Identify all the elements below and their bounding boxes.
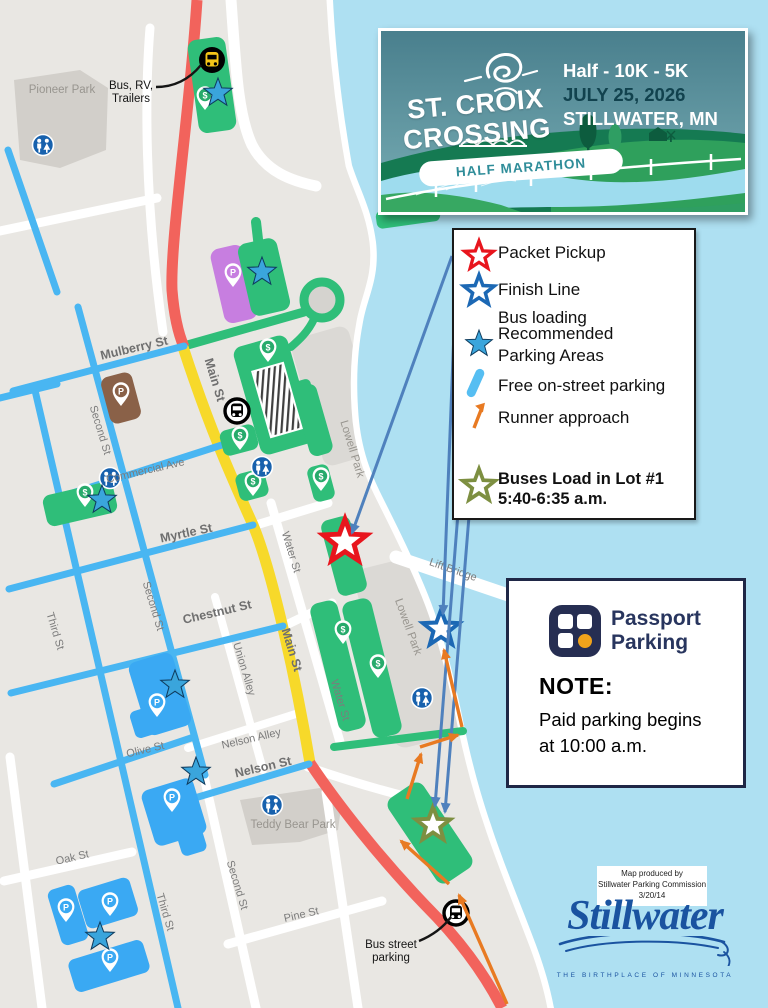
passport-parking-logo-icon <box>549 605 601 657</box>
restroom-icon <box>33 135 54 156</box>
svg-text:P: P <box>107 952 113 962</box>
restroom-icon <box>262 795 283 816</box>
legend-box: Packet Pickup Finish Line Bus loading Re… <box>452 228 696 520</box>
finish-line-legend-star-icon <box>459 270 499 310</box>
runner-approach-arrow-icon <box>464 398 494 434</box>
credit-line1: Map produced by <box>597 869 707 880</box>
city-logo-name: Stillwater <box>550 896 740 936</box>
passport-brand: Passport Parking <box>611 607 701 655</box>
note-title: NOTE: <box>539 673 613 700</box>
bus-icon <box>225 399 249 423</box>
legend-buses-load-2: 5:40-6:35 a.m. <box>498 490 607 509</box>
legend-finish-line: Finish Line <box>498 280 580 300</box>
svg-text:$: $ <box>375 658 380 668</box>
park-label-pioneer: Pioneer Park <box>29 84 96 96</box>
legend-recommended-1: Recommended <box>498 324 613 344</box>
credit-line2: Stillwater Parking Commission <box>597 880 707 891</box>
note-line1: Paid parking begins <box>539 709 702 731</box>
legend-runner-approach: Runner approach <box>498 408 629 428</box>
legend-recommended-2: Parking Areas <box>498 346 604 366</box>
packet-pickup-legend-star-icon <box>460 236 498 274</box>
svg-text:P: P <box>63 902 69 912</box>
bus-street-label: Bus street <box>365 939 418 951</box>
svg-text:$: $ <box>265 342 270 352</box>
banner-races: Half - 10K - 5K <box>563 59 718 83</box>
svg-text:$: $ <box>202 90 207 100</box>
buses-load-legend-star-icon <box>458 464 500 506</box>
city-logo-tagline: THE BIRTHPLACE OF MINNESOTA <box>550 972 740 979</box>
legend-buses-load-1: Buses Load in Lot #1 <box>498 470 664 489</box>
svg-text:P: P <box>154 697 160 707</box>
banner-date: JULY 25, 2026 <box>563 83 718 107</box>
legend-free-parking: Free on-street parking <box>498 376 665 396</box>
svg-text:P: P <box>118 386 124 396</box>
svg-text:P: P <box>107 896 113 906</box>
svg-text:$: $ <box>250 476 255 486</box>
banner-event-info: Half - 10K - 5K JULY 25, 2026 STILLWATER… <box>563 59 718 131</box>
stillwater-city-logo: Stillwater THE BIRTHPLACE OF MINNESOTA <box>550 896 740 979</box>
city-logo-swoosh-icon <box>552 936 738 966</box>
event-banner: ST. CROIX CROSSING HALF MARATHON Half - … <box>378 28 748 215</box>
svg-text:P: P <box>169 792 175 802</box>
roundabout <box>304 282 340 318</box>
free-parking-swatch-icon <box>465 367 485 398</box>
passport-parking-note-box: Passport Parking NOTE: Paid parking begi… <box>506 578 746 788</box>
bus-rv-label: Bus, RV, <box>109 80 153 92</box>
svg-text:parking: parking <box>372 952 410 964</box>
banner-city: STILLWATER, MN <box>563 107 718 131</box>
recommended-parking-legend-star-icon <box>462 326 496 360</box>
svg-text:$: $ <box>237 430 242 440</box>
svg-text:$: $ <box>340 624 345 634</box>
bus-rv-loading-icon <box>199 47 225 73</box>
park-label-teddy: Teddy Bear Park <box>250 819 335 831</box>
legend-packet-pickup: Packet Pickup <box>498 243 606 263</box>
svg-text:Trailers: Trailers <box>112 93 150 105</box>
svg-text:$: $ <box>318 471 323 481</box>
restroom-icon <box>412 688 433 709</box>
note-line2: at 10:00 a.m. <box>539 735 647 757</box>
svg-text:P: P <box>230 267 236 277</box>
parking-map-page: $ $ $ $ $ $ $ $ P P P P P P P <box>0 0 768 1008</box>
restroom-icon <box>252 457 273 478</box>
svg-text:$: $ <box>82 487 87 497</box>
